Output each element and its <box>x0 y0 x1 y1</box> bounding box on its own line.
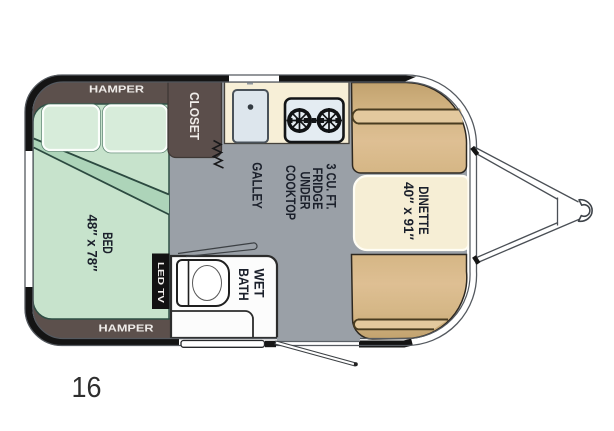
svg-text:BED: BED <box>99 232 115 254</box>
svg-text:16: 16 <box>72 372 102 404</box>
svg-text:48″ x 78″: 48″ x 78″ <box>84 215 100 272</box>
svg-text:40″ x 91″: 40″ x 91″ <box>400 182 416 240</box>
svg-text:HAMPER: HAMPER <box>99 324 155 335</box>
svg-text:GALLEY: GALLEY <box>249 162 265 209</box>
svg-text:DINETTE: DINETTE <box>415 186 431 235</box>
svg-text:CLOSET: CLOSET <box>187 92 202 140</box>
svg-text:UNDER: UNDER <box>297 172 313 210</box>
svg-text:HAMPER: HAMPER <box>89 85 145 96</box>
svg-text:COOKTOP: COOKTOP <box>282 165 298 220</box>
svg-text:WET: WET <box>251 269 267 298</box>
svg-text:LED TV: LED TV <box>156 262 166 303</box>
svg-text:BATH: BATH <box>235 268 251 301</box>
